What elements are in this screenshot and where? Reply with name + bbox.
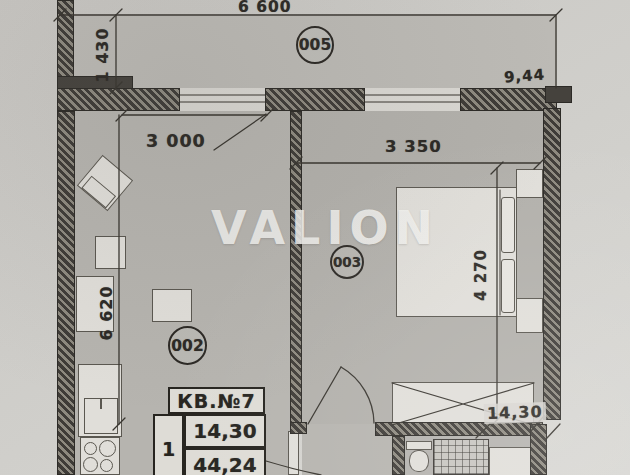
apartment-table-rooms-count: 1 [153, 414, 184, 475]
room-tag-balcony: 005 [296, 26, 334, 64]
window-glazing [180, 95, 460, 102]
dim-living-depth: 6 620 [97, 278, 117, 348]
dim-leader [214, 114, 266, 150]
dim-balcony-depth: 1 430 [93, 20, 113, 90]
apartment-table-title: КВ.№7 [168, 387, 265, 414]
valion-watermark: VALION [211, 203, 439, 254]
apartment-table-total-area: 44,24 [184, 448, 266, 475]
dim-bedroom-width: 3 350 [385, 137, 442, 157]
dim-bedroom-depth: 4 270 [471, 243, 491, 307]
bedroom-door-leaf [308, 367, 341, 424]
apartment-table-living-area: 14,30 [184, 414, 266, 448]
area-label-tick [476, 424, 490, 438]
dim-balcony-area: 9,44 [503, 65, 545, 88]
room-tag-living: 002 [168, 326, 207, 365]
hall-door-swing-arc [266, 461, 321, 475]
dim-balcony-width: 6 600 [238, 0, 292, 17]
bedroom-door-swing-arc [341, 367, 374, 423]
dim-bedroom-area: 14,30 [484, 402, 546, 424]
dim-living-width: 3 000 [146, 131, 206, 151]
floor-plan-scan: 6 600 1 430 9,44 3 000 3 350 6 620 4 270… [0, 0, 630, 475]
